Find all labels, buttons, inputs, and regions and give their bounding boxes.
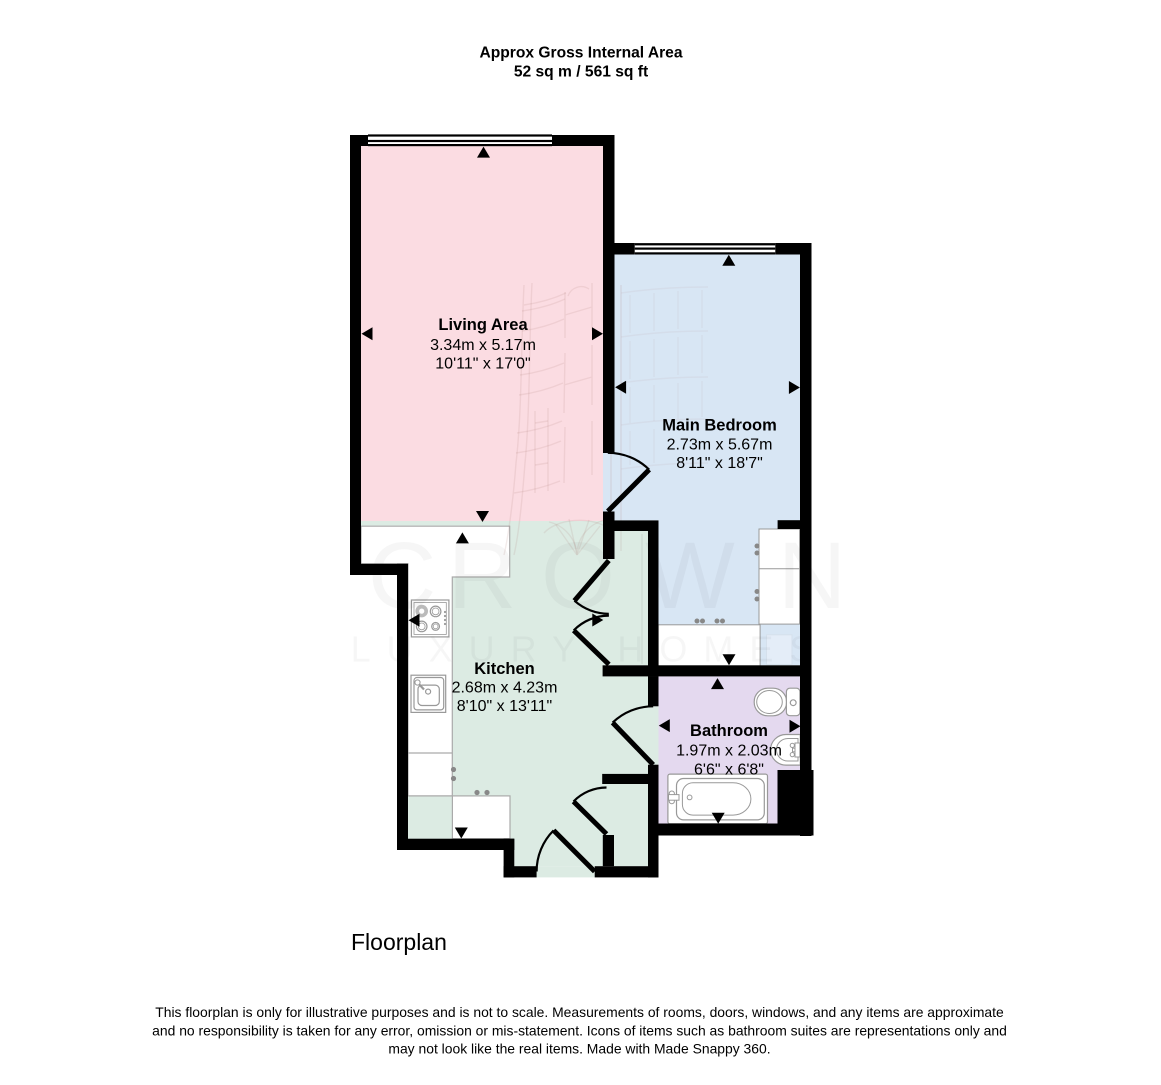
svg-text:Floorplan: Floorplan (351, 929, 447, 955)
svg-text:1.97m x 2.03m: 1.97m x 2.03m (676, 743, 782, 760)
svg-text:3.34m x 5.17m: 3.34m x 5.17m (430, 337, 536, 354)
svg-text:Kitchen: Kitchen (474, 660, 535, 678)
svg-text:Approx Gross Internal Area: Approx Gross Internal Area (479, 45, 682, 62)
svg-text:Living Area: Living Area (438, 316, 528, 334)
svg-text:52 sq m / 561 sq ft: 52 sq m / 561 sq ft (514, 64, 648, 81)
svg-text:8'10" x 13'11": 8'10" x 13'11" (457, 698, 552, 715)
svg-text:6'6" x 6'8": 6'6" x 6'8" (694, 762, 764, 779)
svg-text:2.73m x 5.67m: 2.73m x 5.67m (667, 437, 773, 454)
svg-text:may not look like the real ite: may not look like the real items. Made w… (388, 1041, 770, 1057)
svg-text:and no responsibility is taken: and no responsibility is taken for any e… (152, 1022, 1007, 1038)
svg-text:W: W (645, 523, 735, 629)
svg-text:8'11" x 18'7": 8'11" x 18'7" (676, 455, 763, 472)
svg-text:Bathroom: Bathroom (690, 722, 768, 740)
svg-text:2.68m x 4.23m: 2.68m x 4.23m (452, 680, 558, 697)
svg-text:R: R (448, 523, 517, 629)
svg-text:10'11" x 17'0": 10'11" x 17'0" (435, 356, 530, 373)
svg-text:N: N (778, 523, 847, 629)
svg-text:This floorplan is only for ill: This floorplan is only for illustrative … (155, 1004, 1004, 1020)
svg-text:Main Bedroom: Main Bedroom (662, 417, 777, 435)
